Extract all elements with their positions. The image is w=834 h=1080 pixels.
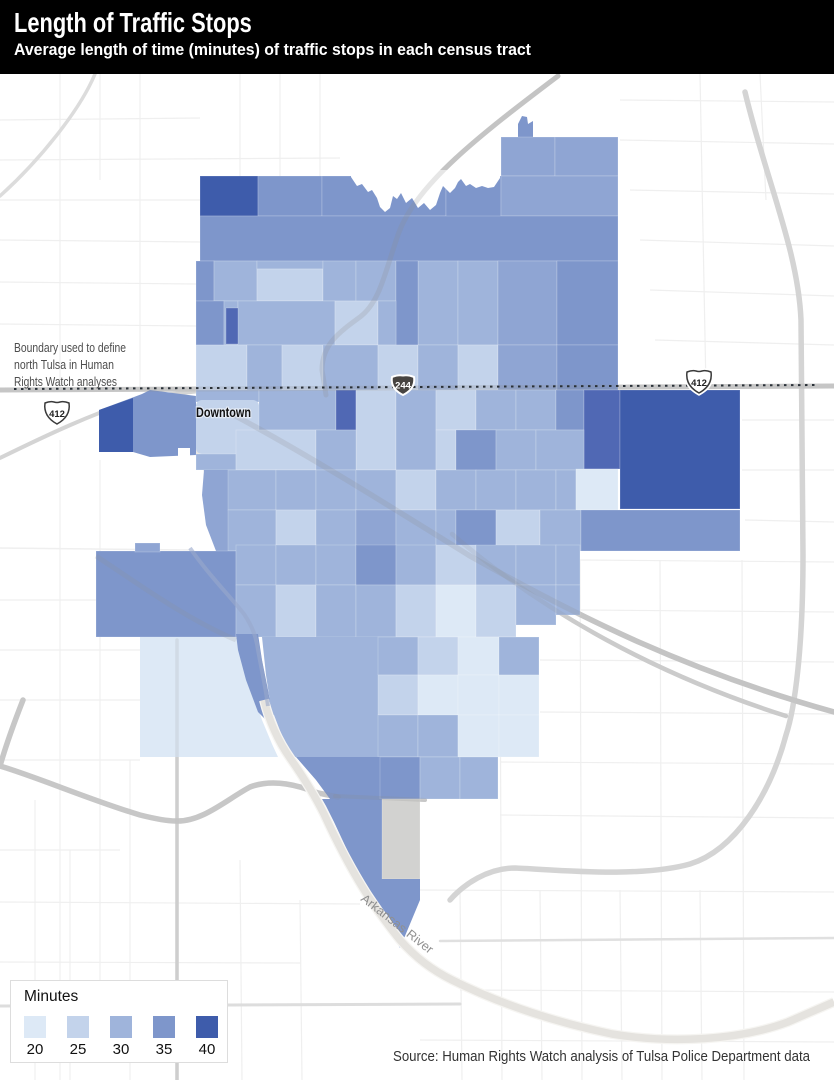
svg-text:Downtown: Downtown [196, 405, 251, 420]
svg-text:Rights Watch analyses: Rights Watch analyses [14, 374, 117, 389]
svg-text:Boundary used to define: Boundary used to define [14, 340, 126, 355]
svg-text:412: 412 [49, 409, 65, 420]
svg-text:244: 244 [395, 381, 412, 392]
svg-text:412: 412 [691, 378, 707, 389]
svg-text:north Tulsa in Human: north Tulsa in Human [14, 357, 114, 372]
